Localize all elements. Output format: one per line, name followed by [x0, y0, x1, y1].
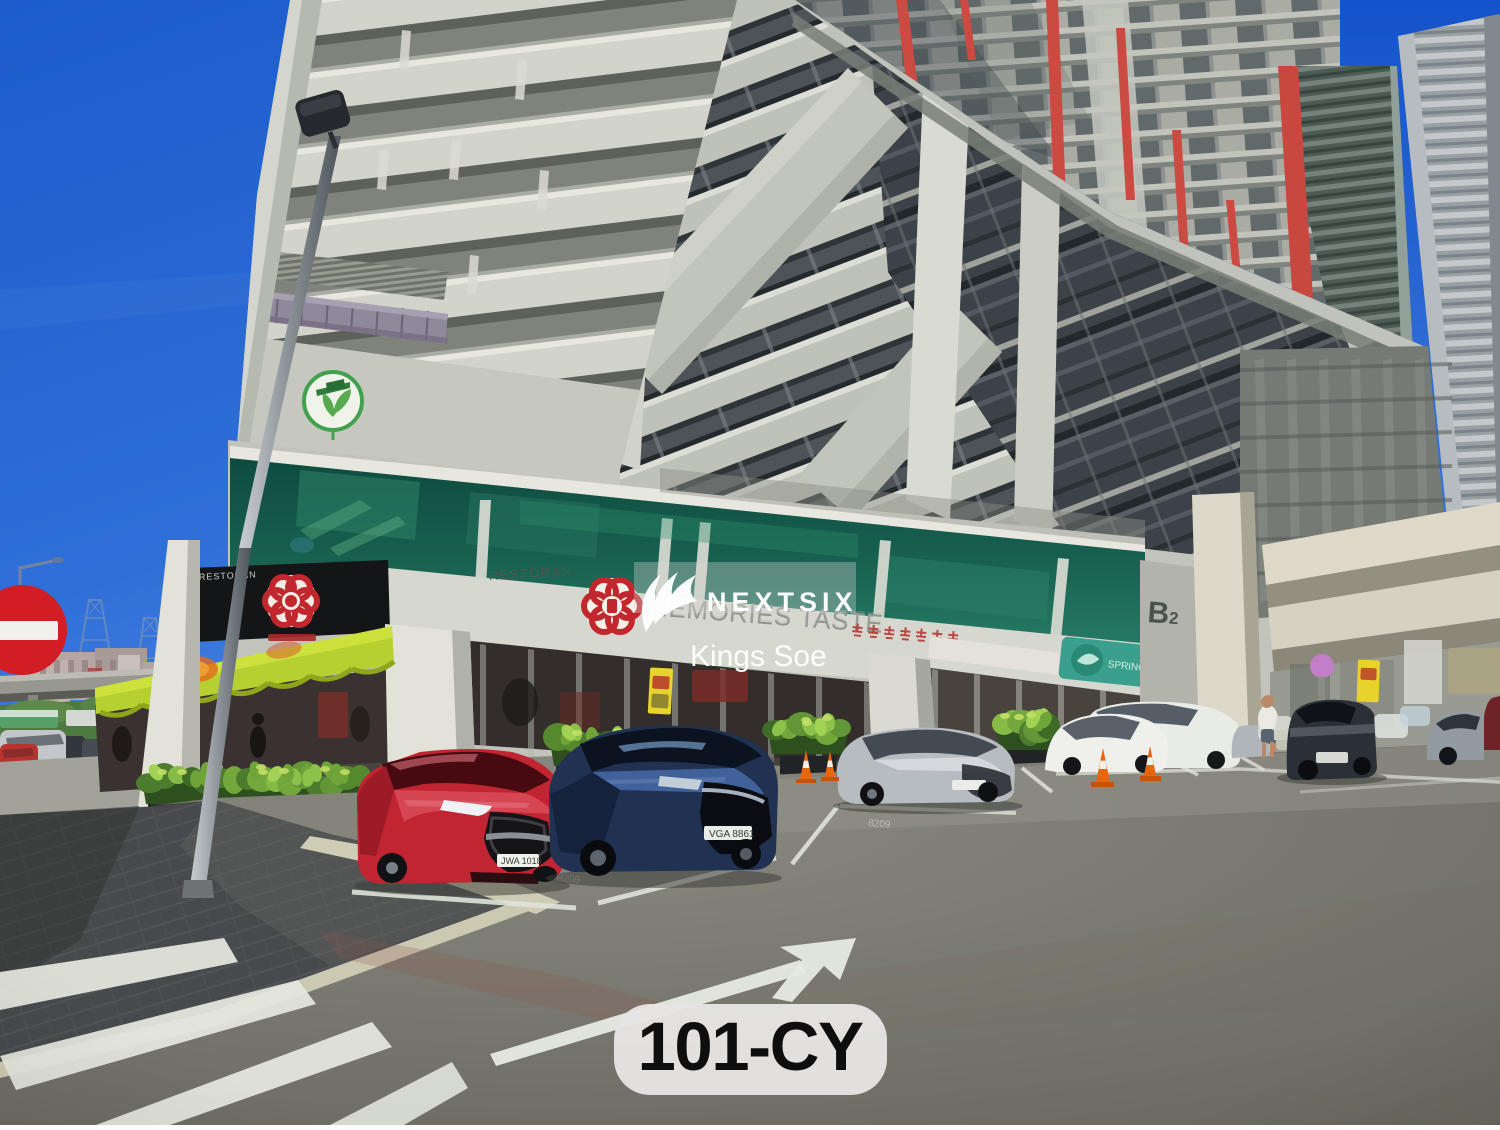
svg-text:101-CY: 101-CY	[638, 1008, 863, 1085]
svg-text:Kings Soe: Kings Soe	[690, 640, 827, 673]
svg-text:NEXTSIX: NEXTSIX	[707, 587, 858, 617]
